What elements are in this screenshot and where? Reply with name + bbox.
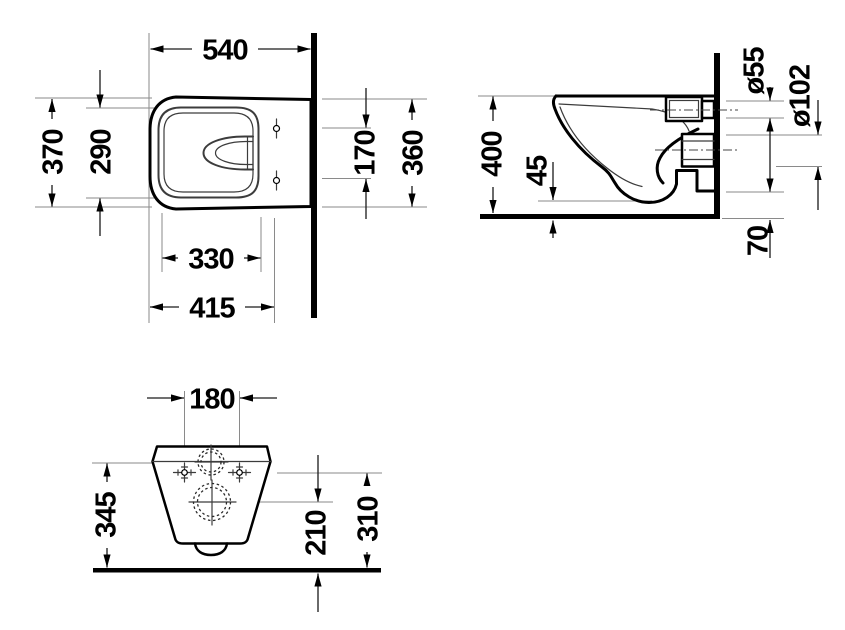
dim-outlet-center-height-label: 210 <box>301 510 333 555</box>
dim-overall-depth-label: 540 <box>202 35 247 67</box>
dim-inlet-diameter-label: ø55 <box>739 47 771 95</box>
dim-inner-width-label: 290 <box>86 129 118 174</box>
floor-line-front <box>93 568 381 573</box>
dim-rim-height: 400 <box>476 97 509 214</box>
technical-drawing-page: 540 370 290 170 <box>0 0 845 630</box>
toilet-outline-front <box>153 445 271 555</box>
toilet-dimension-drawing: 540 370 290 170 <box>0 0 845 630</box>
dim-bottom-wall-gap: 70 <box>743 220 775 258</box>
seat-fixing-holes-plan <box>274 119 280 190</box>
side-view: 400 45 ø55 ø102 <box>476 47 822 258</box>
dim-fixing-hole-spacing: 180 <box>147 384 277 416</box>
dim-overall-width: 370 <box>37 99 70 207</box>
floor-line-side <box>480 214 720 219</box>
outlet-pipe <box>655 134 740 167</box>
dim-overall-width-label: 370 <box>38 129 70 174</box>
dim-outlet-diameter: ø102 <box>785 65 819 210</box>
dim-ceramic-height-label: 345 <box>91 491 123 537</box>
plan-extension-lines <box>35 33 427 323</box>
dim-bowl-floor-clearance-label: 45 <box>522 155 554 186</box>
dim-width-at-wall-label: 360 <box>398 130 430 175</box>
dim-seat-hole-spacing-label: 170 <box>350 130 382 175</box>
toilet-outline-plan <box>150 97 311 209</box>
dim-overall-depth: 540 <box>151 35 311 67</box>
trap-bump <box>195 544 227 556</box>
dim-bowl-inner-length-label: 330 <box>188 244 233 276</box>
dim-seat-hole-spacing: 170 <box>350 88 382 219</box>
dim-outlet-diameter-label: ø102 <box>785 65 817 127</box>
dim-fixing-hole-spacing-label: 180 <box>189 384 234 416</box>
water-inlet-pipe <box>650 97 738 121</box>
dim-inner-width: 290 <box>86 70 118 236</box>
dim-bowl-floor-clearance: 45 <box>522 155 554 238</box>
dim-fixing-hole-height-label: 310 <box>353 496 385 541</box>
dim-front-to-seat-holes: 415 <box>150 293 274 325</box>
dim-rim-height-label: 400 <box>477 131 509 176</box>
toilet-profile-side <box>553 96 740 203</box>
dim-front-to-seat-holes-label: 415 <box>189 293 235 325</box>
front-view: 180 345 210 310 <box>90 384 385 613</box>
dim-bottom-wall-gap-label: 70 <box>743 226 775 256</box>
dim-width-at-wall: 360 <box>397 100 430 207</box>
dim-outlet-center-height: 210 <box>301 455 333 612</box>
dim-bowl-inner-length: 330 <box>163 244 261 276</box>
dim-ceramic-height: 345 <box>90 464 123 568</box>
dim-inlet-diameter: ø55 <box>739 47 771 192</box>
dim-fixing-hole-height: 310 <box>352 474 385 568</box>
plan-view: 540 370 290 170 <box>35 33 430 325</box>
